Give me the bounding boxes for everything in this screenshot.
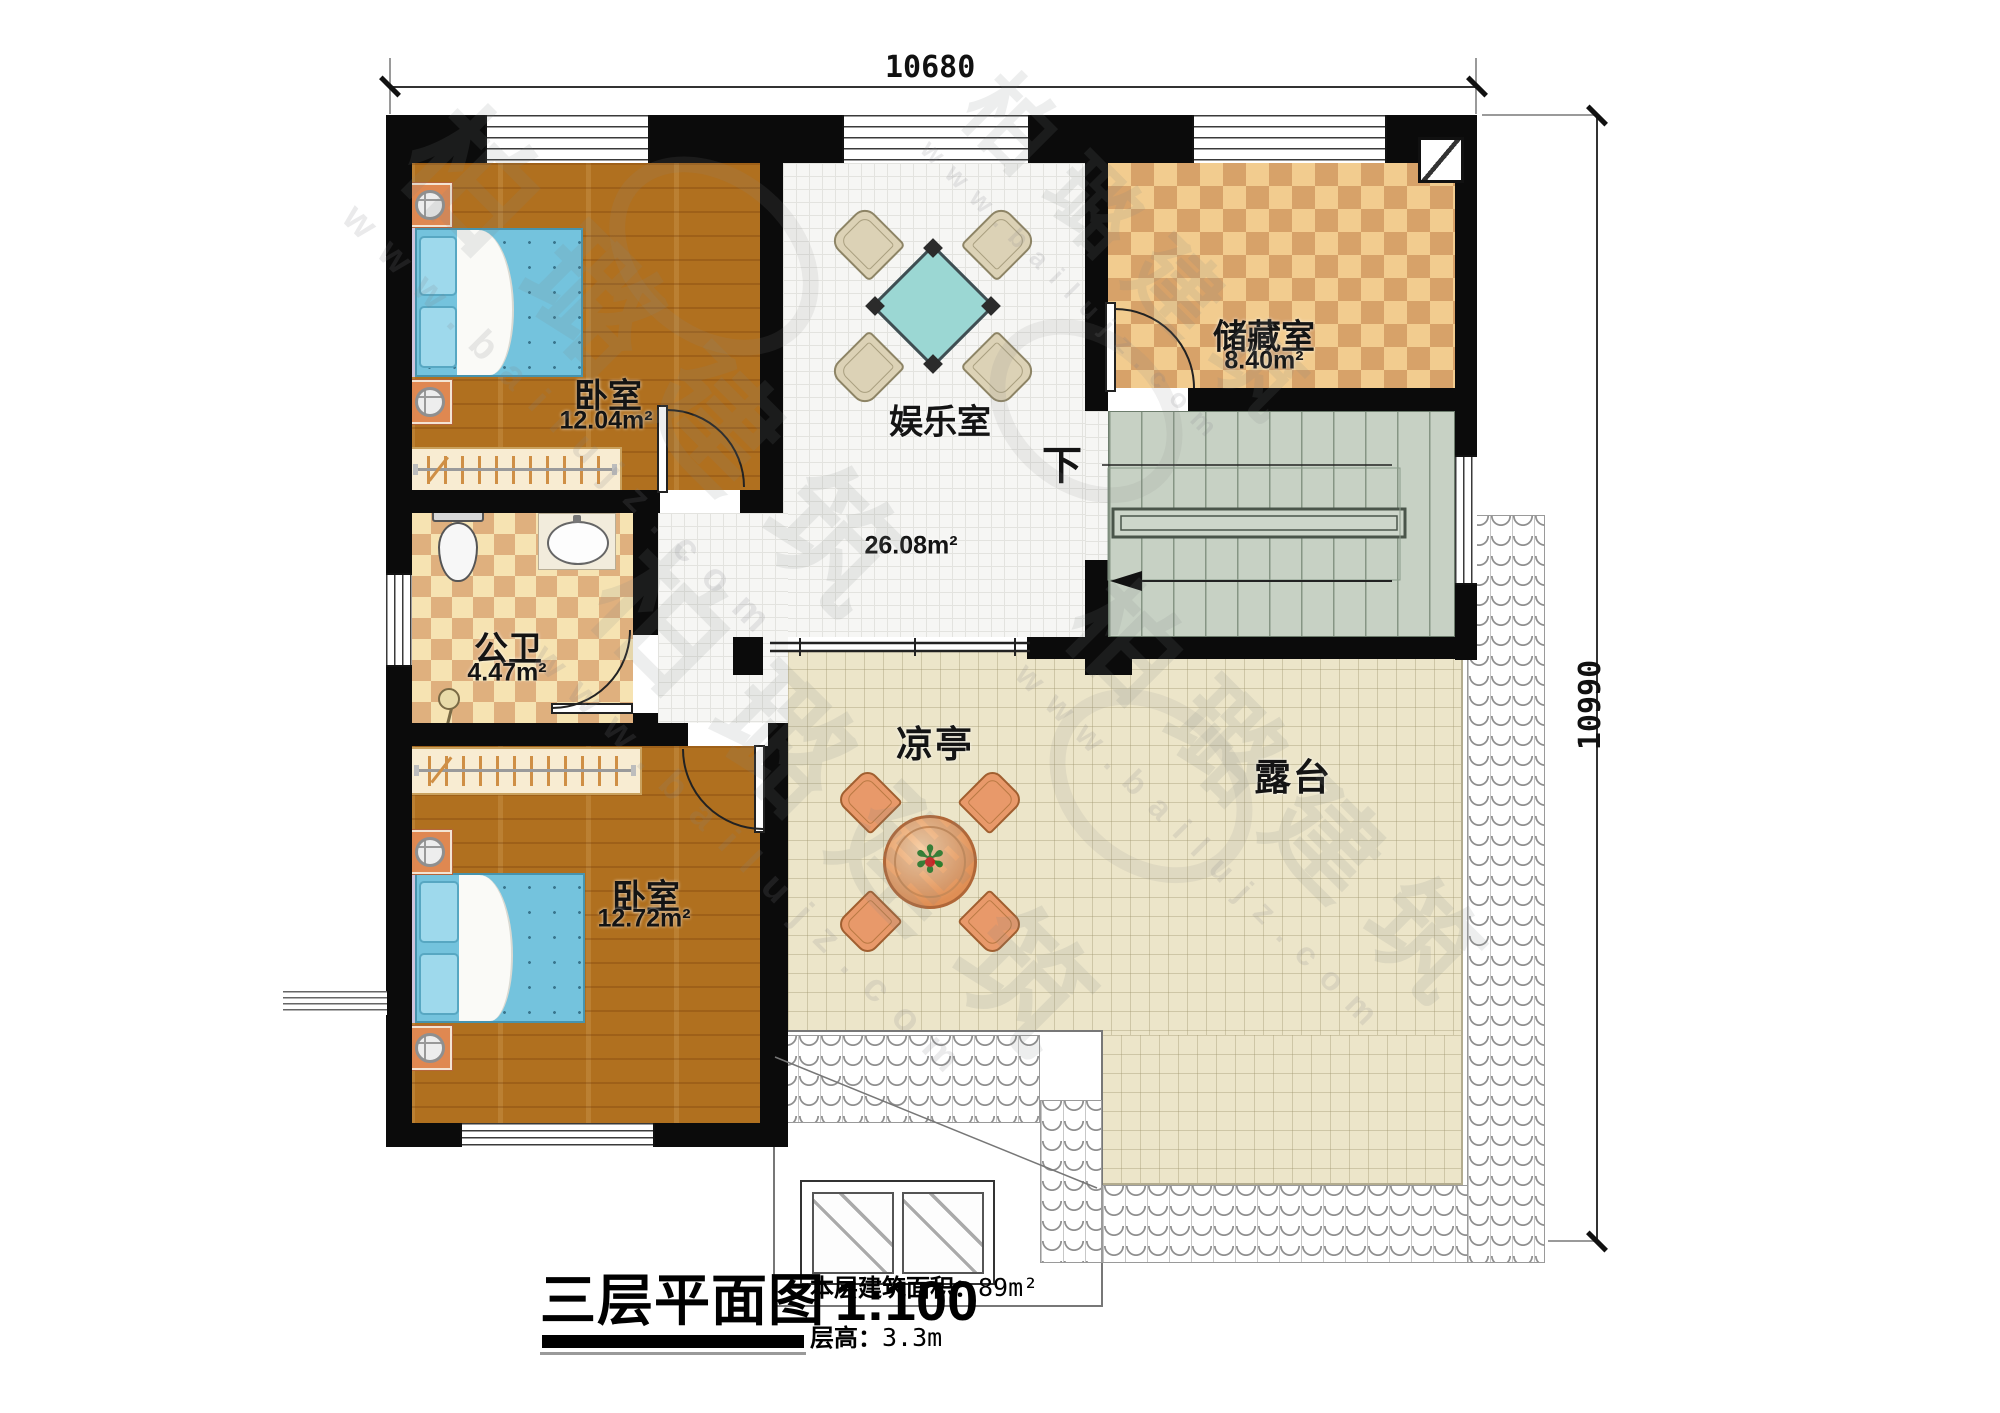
floor-height-label: 层高： — [810, 1325, 882, 1352]
toilet-bowl — [438, 522, 478, 582]
stairs-down-label: 下 — [1042, 433, 1082, 491]
floor-height-note: 层高：3.3m — [810, 1318, 942, 1353]
eave-lines — [283, 991, 387, 1015]
wall — [650, 115, 842, 163]
lamp-icon — [415, 837, 445, 867]
lamp-icon — [415, 190, 445, 220]
door-opening — [660, 490, 740, 513]
lamp-icon — [415, 1033, 445, 1063]
dimension-line-top — [390, 86, 1477, 88]
floor-plan-canvas: ✻ — [0, 0, 2000, 1413]
wall — [740, 490, 783, 513]
wall — [1188, 388, 1477, 411]
wall — [760, 746, 788, 1147]
wall — [733, 637, 763, 675]
door-opening — [633, 635, 658, 713]
dimension-value-right: 10990 — [1573, 660, 1608, 750]
wall — [633, 513, 658, 635]
dimension-extension — [1548, 1240, 1596, 1242]
pillow — [419, 881, 459, 943]
pillow — [419, 953, 459, 1015]
wall — [386, 115, 485, 163]
nightstand — [408, 380, 452, 424]
dimension-extension — [1482, 114, 1596, 116]
window — [386, 573, 412, 667]
room-area-storage: 8.40m² — [1224, 347, 1303, 376]
room-label-entertainment: 娱乐室 — [889, 395, 991, 444]
door-opening — [1108, 388, 1188, 411]
lamp-icon — [415, 387, 445, 417]
closet-rod — [417, 769, 633, 772]
closet-rod — [416, 468, 613, 471]
wall — [1455, 163, 1477, 455]
nightstand — [408, 830, 452, 874]
floor-area-value: 89m² — [978, 1273, 1038, 1302]
wall — [1085, 163, 1108, 411]
dimension-value-top: 10680 — [885, 50, 975, 85]
staircase — [1108, 411, 1455, 637]
room-label-pavilion: 凉亭 — [896, 714, 974, 768]
room-label-terrace: 露台 — [1254, 747, 1332, 801]
title-underline — [542, 1335, 804, 1348]
floor-area-label: 本层建筑面积： — [810, 1275, 978, 1302]
patio-table: ✻ — [883, 815, 977, 909]
wardrobe-bedroom-1 — [408, 447, 622, 493]
plan-title: 三层平面图 — [540, 1256, 825, 1337]
wall — [760, 163, 783, 513]
floor-terrace-lower — [1102, 1035, 1463, 1185]
bed-bedroom-1 — [405, 228, 583, 377]
floor-area-note: 本层建筑面积：89m² — [810, 1268, 1038, 1303]
door-opening — [688, 723, 768, 746]
window — [1455, 455, 1477, 585]
wall — [386, 723, 688, 746]
pillow — [419, 236, 457, 296]
floor-drain — [438, 688, 460, 710]
wall — [1085, 637, 1132, 675]
room-area-entertainment: 26.08m² — [864, 532, 957, 561]
wall — [655, 1123, 788, 1147]
room-area-bathroom: 4.47m² — [467, 659, 546, 688]
room-area-bedroom-1: 12.04m² — [559, 407, 652, 436]
faucet-icon — [573, 515, 581, 523]
sink-counter — [538, 513, 616, 570]
window — [485, 115, 650, 163]
wardrobe-bedroom-2 — [408, 747, 642, 795]
roof-tile-band-right — [1467, 515, 1545, 1263]
floor-corridor — [658, 513, 788, 725]
floor-height-value: 3.3m — [882, 1323, 942, 1352]
plant-center — [925, 857, 935, 867]
roof-tile-band-top — [775, 1035, 1040, 1123]
bed-bedroom-2 — [405, 873, 585, 1023]
wall — [386, 490, 660, 513]
window — [1192, 115, 1387, 163]
wall — [1030, 115, 1192, 163]
window — [460, 1123, 655, 1147]
title-underline-thin — [540, 1352, 806, 1355]
wall — [1085, 388, 1108, 411]
room-area-bedroom-2: 12.72m² — [597, 905, 690, 934]
pillow — [419, 306, 457, 368]
flue-shaft — [1418, 137, 1464, 183]
sink-basin — [547, 521, 609, 565]
wall — [768, 723, 788, 746]
wall — [386, 1123, 460, 1147]
nightstand — [408, 1026, 452, 1070]
roof-tile-band-connector — [1040, 1100, 1102, 1263]
nightstand — [408, 183, 452, 227]
window — [842, 115, 1030, 163]
